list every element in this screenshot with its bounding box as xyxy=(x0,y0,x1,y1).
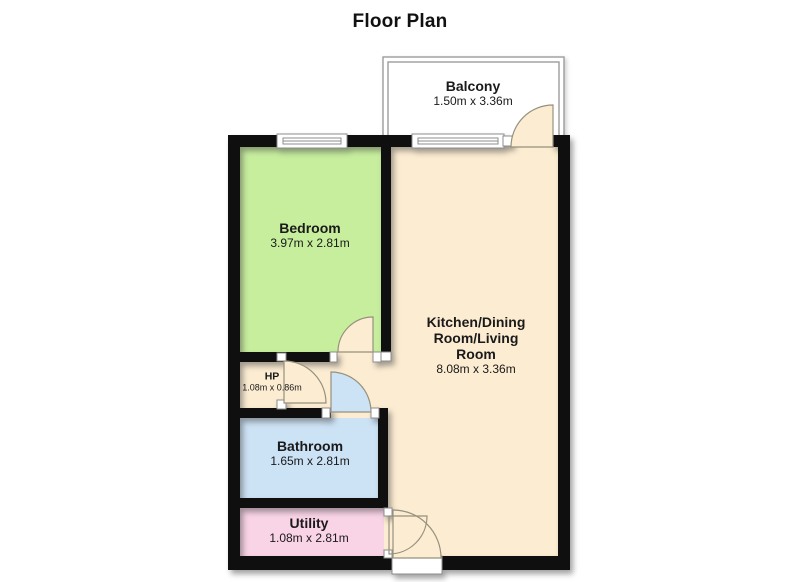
jamb-bedroom-door-right xyxy=(373,352,381,362)
wall-bottom-seg2 xyxy=(441,556,570,570)
jamb-utility-door-top xyxy=(384,508,392,516)
jamb-bathroom-door-right xyxy=(371,408,379,418)
window-bedroom xyxy=(277,134,347,148)
entrance-threshold xyxy=(392,556,442,574)
jamb-kitchen-wall-end xyxy=(381,352,391,361)
wall-bottom-seg1 xyxy=(228,556,393,570)
wall-right xyxy=(558,135,570,570)
wall-bathroom-right xyxy=(378,408,388,508)
jamb-hp-door-top xyxy=(277,353,286,361)
wall-bathroom-bottom xyxy=(228,498,388,508)
utility-floor xyxy=(240,508,384,556)
floor-plan-canvas xyxy=(0,0,800,582)
floor-plan-page: Floor Plan Balcony 1.50m x 3.36m Bedroom… xyxy=(0,0,800,582)
jamb-bathroom-door-left xyxy=(322,408,330,418)
jamb-bedroom-door-left xyxy=(330,352,337,362)
wall-top-seg1 xyxy=(228,135,278,147)
bathroom-floor xyxy=(240,418,378,498)
wall-top-seg2 xyxy=(347,135,413,147)
wall-bedroom-kitchen xyxy=(381,147,391,352)
wall-top-seg3 xyxy=(552,135,570,147)
window-kitchen xyxy=(412,134,504,148)
